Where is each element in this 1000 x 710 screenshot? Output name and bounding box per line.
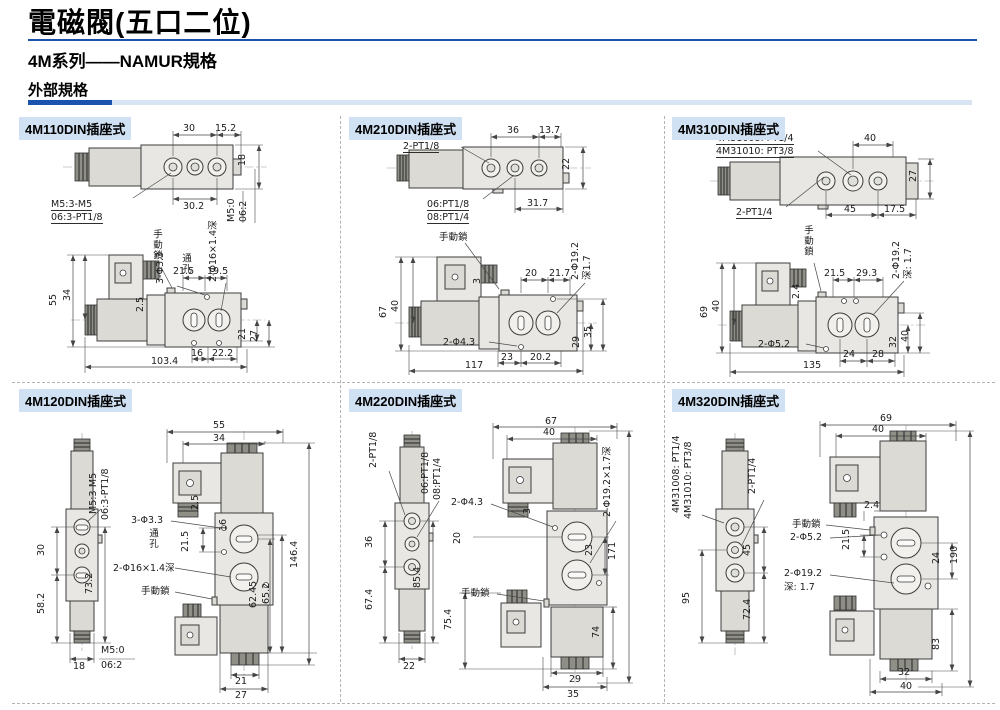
port-spec-label: 06:2	[238, 201, 249, 222]
counterbore-depth-label: 深: 1.7	[903, 248, 914, 279]
section-underline	[28, 100, 972, 105]
drawing-4m210	[345, 115, 660, 380]
dim-label: 22	[403, 661, 415, 672]
dim-label: 31.7	[527, 198, 548, 209]
dim-label: 18	[237, 154, 248, 166]
port-spec-label: 08:PT1/4	[432, 458, 443, 500]
dim-label: 40	[390, 300, 401, 312]
dim-label: 67	[378, 306, 389, 318]
hole-spec-label: 3-Φ3.3	[131, 515, 163, 526]
hole-spec-label: 2-Φ5.2	[790, 532, 822, 543]
dim-label: 27	[908, 170, 919, 182]
port-spec-label: M5:0	[226, 199, 237, 223]
catalog-page: 電磁閥(五口二位) 4M系列——NAMUR規格 外部規格 4M110DIN插座式	[0, 0, 1000, 710]
hole-spec-label: 2-Φ4.3	[443, 337, 475, 348]
port-spec-label: 2-PT1/8	[368, 432, 379, 468]
dim-label: 67.4	[364, 589, 375, 610]
dim-label: 20	[525, 268, 537, 279]
dim-label: 18	[73, 661, 85, 672]
dim-label: 20	[452, 532, 463, 544]
port-spec-label: M5:3-M5	[88, 473, 99, 514]
dim-label: 45	[844, 204, 856, 215]
dim-label: 40	[711, 300, 722, 312]
dim-label: 32	[888, 336, 899, 348]
dim-label: 69	[880, 413, 892, 424]
dim-label: 2.5	[190, 495, 201, 510]
dim-label: 16	[218, 519, 229, 531]
dim-label: 17.5	[884, 204, 905, 215]
dim-label: 21	[237, 328, 248, 340]
panel-title: 4M320DIN插座式	[672, 389, 785, 412]
counterbore-label: 2-Φ19.2	[784, 568, 822, 579]
counterbore-label: 2-Φ19.2	[891, 241, 902, 279]
manual-override-label: 手動鎖	[439, 232, 468, 243]
port-spec-label: M5:0	[101, 645, 125, 656]
manual-override-label: 手動鎖	[141, 586, 170, 597]
dim-label: 73.2	[84, 573, 95, 594]
panel-title: 4M310DIN插座式	[672, 117, 785, 140]
dim-label: 30.2	[183, 201, 204, 212]
series-subtitle: 4M系列——NAMUR規格	[28, 47, 217, 72]
dim-label: 40	[900, 681, 912, 692]
dim-label: 13.7	[539, 125, 560, 136]
port-spec-label: 2-PT1/8	[403, 141, 439, 153]
dim-label: 15.2	[215, 123, 236, 134]
section-underline-accent	[28, 100, 112, 105]
counterbore-depth-label: 深: 1.7	[784, 582, 815, 593]
dim-label: 23	[584, 544, 595, 556]
port-spec-label: 06:PT1/8	[420, 452, 431, 494]
counterbore-label: 2-Φ19.2×1.7深	[602, 446, 613, 517]
dim-label: 32	[898, 667, 910, 678]
title-rule	[28, 39, 977, 41]
dim-label: 69	[699, 306, 710, 318]
port-spec-label: 06:3-PT1/8	[51, 212, 103, 224]
dim-label: 28	[872, 349, 884, 360]
hole-spec-label: 2-Φ5.2	[758, 339, 790, 350]
port-spec-label: 06:2	[101, 660, 122, 671]
section-title: 外部規格	[28, 79, 88, 100]
column-divider	[664, 116, 665, 702]
panel-4m210: 4M210DIN插座式	[345, 115, 660, 380]
dim-total-height: 171	[607, 542, 618, 560]
dim-label: 16	[191, 348, 203, 359]
dim-label: 21.5	[180, 531, 191, 552]
dim-label: 29	[569, 674, 581, 685]
dim-label: 55	[48, 294, 59, 306]
manual-override-label: 手動鎖	[461, 588, 490, 599]
dim-label: 72.4	[742, 599, 753, 620]
dim-label: 45	[742, 544, 753, 556]
panel-4m310: 4M310DIN插座式	[668, 115, 998, 380]
port-spec-label: 06:PT1/8	[427, 199, 469, 211]
dim-label: 24	[843, 349, 855, 360]
dim-label: 30	[36, 544, 47, 556]
panel-title: 4M210DIN插座式	[349, 117, 462, 140]
dim-label: 85.4	[412, 567, 423, 588]
row-divider	[12, 382, 995, 383]
dim-label: 27	[235, 690, 247, 701]
dim-label: 58.2	[36, 593, 47, 614]
model-spec-label: 4M31010: PT3/8	[716, 146, 794, 158]
dim-label: 34	[213, 433, 225, 444]
panel-4m120: 4M120DIN插座式	[15, 387, 338, 705]
dim-label: 19.5	[207, 266, 228, 277]
port-spec-label: M5:3-M5	[51, 199, 92, 211]
dim-label: 21.7	[549, 268, 570, 279]
dim-label: 35	[583, 326, 594, 338]
port-spec-label: 06:3-PT1/8	[100, 468, 111, 520]
drawing-4m110	[15, 115, 338, 380]
panel-title: 4M220DIN插座式	[349, 389, 462, 412]
dim-total-height: 146.4	[289, 541, 300, 568]
dim-label: 3	[522, 508, 533, 514]
dim-label: 74	[591, 626, 602, 638]
model-spec-label: 4M31010: PT3/8	[683, 441, 694, 519]
panel-4m320: 4M320DIN插座式	[668, 387, 998, 705]
port-spec-label: 08:PT1/4	[427, 212, 469, 224]
panel-4m110: 4M110DIN插座式	[15, 115, 338, 380]
model-spec-label: 4M31008: PT1/4	[671, 435, 682, 513]
dim-label: 27	[249, 330, 260, 342]
through-hole-label: 通孔	[145, 528, 159, 549]
dim-label: 29	[571, 336, 582, 348]
dim-label: 2.4	[864, 500, 879, 511]
dim-label: 75.4	[443, 609, 454, 630]
dim-label: 62.45	[248, 581, 259, 608]
dim-label: 34	[62, 289, 73, 301]
dim-label: 35	[567, 689, 579, 700]
dim-label: 23	[501, 352, 513, 363]
page-title: 電磁閥(五口二位)	[28, 1, 252, 41]
dim-label: 40	[864, 133, 876, 144]
hole-spec-label: 3-Φ3.3	[155, 252, 166, 284]
dim-label: 30	[183, 123, 195, 134]
dim-label: 22	[561, 158, 572, 170]
dim-label: 21	[235, 676, 247, 687]
dim-label: 2.5	[135, 297, 146, 312]
dim-label: 95	[681, 592, 692, 604]
panel-title: 4M110DIN插座式	[19, 117, 131, 140]
dim-label: 3	[472, 278, 483, 284]
dim-label: 22.2	[212, 348, 233, 359]
dim-total-height: 190	[949, 546, 960, 564]
dim-label: 2.4	[791, 284, 802, 299]
dim-label: 36	[364, 536, 375, 548]
panel-title: 4M120DIN插座式	[19, 389, 132, 412]
dim-label: 55	[213, 420, 225, 431]
dim-label: 24	[931, 552, 942, 564]
port-spec-label: 2-PT1/4	[747, 458, 758, 494]
dim-label: 67	[545, 416, 557, 427]
dim-label: 21.5	[841, 529, 852, 550]
dim-label: 40	[900, 330, 911, 342]
dim-label: 40	[872, 424, 884, 435]
manual-override-label: 手動鎖	[800, 225, 814, 257]
dim-total-width: 135	[803, 360, 821, 371]
panel-4m220: 4M220DIN插座式	[345, 387, 660, 705]
dim-label: 65.2	[261, 583, 272, 604]
counterbore-label: 2-Φ19.2	[570, 242, 581, 280]
dim-label: 40	[543, 427, 555, 438]
counterbore-label: 2-Φ16×1.4深	[113, 563, 175, 574]
counterbore-depth-label: 深1.7	[582, 255, 593, 280]
dim-total-width: 117	[465, 360, 483, 371]
dim-label: 20.2	[530, 352, 551, 363]
column-divider	[340, 116, 341, 702]
dim-label: 21.5	[173, 266, 194, 277]
dim-label: 36	[507, 125, 519, 136]
dim-label: 29.3	[856, 268, 877, 279]
dim-label: 83	[931, 638, 942, 650]
port-spec-label: 2-PT1/4	[736, 207, 772, 219]
dim-total-width: 103.4	[151, 356, 178, 367]
dim-label: 21.5	[824, 268, 845, 279]
hole-spec-label: 2-Φ4.3	[451, 497, 483, 508]
manual-override-label: 手動鎖	[792, 519, 821, 530]
